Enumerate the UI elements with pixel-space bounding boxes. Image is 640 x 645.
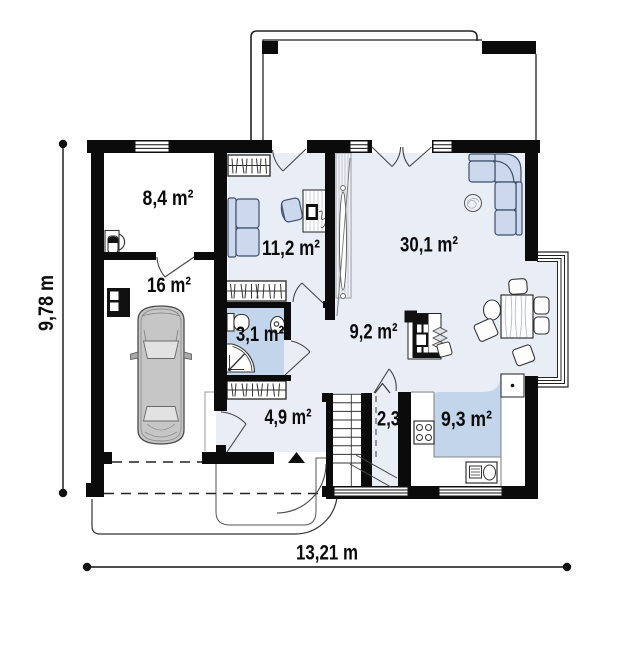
svg-text:9,78 m: 9,78 m [35,275,58,331]
svg-text:9,3 m²: 9,3 m² [441,407,492,431]
svg-text:9,2 m²: 9,2 m² [350,320,398,344]
svg-text:16 m²: 16 m² [147,273,191,297]
svg-text:3,1 m²: 3,1 m² [236,322,284,346]
svg-text:4,9 m²: 4,9 m² [265,405,312,429]
svg-text:8,4 m²: 8,4 m² [143,186,194,210]
svg-text:13,21 m: 13,21 m [296,542,358,565]
svg-text:30,1 m²: 30,1 m² [400,233,458,257]
svg-text:11,2 m²: 11,2 m² [262,236,320,260]
svg-text:2,3: 2,3 [377,407,400,431]
